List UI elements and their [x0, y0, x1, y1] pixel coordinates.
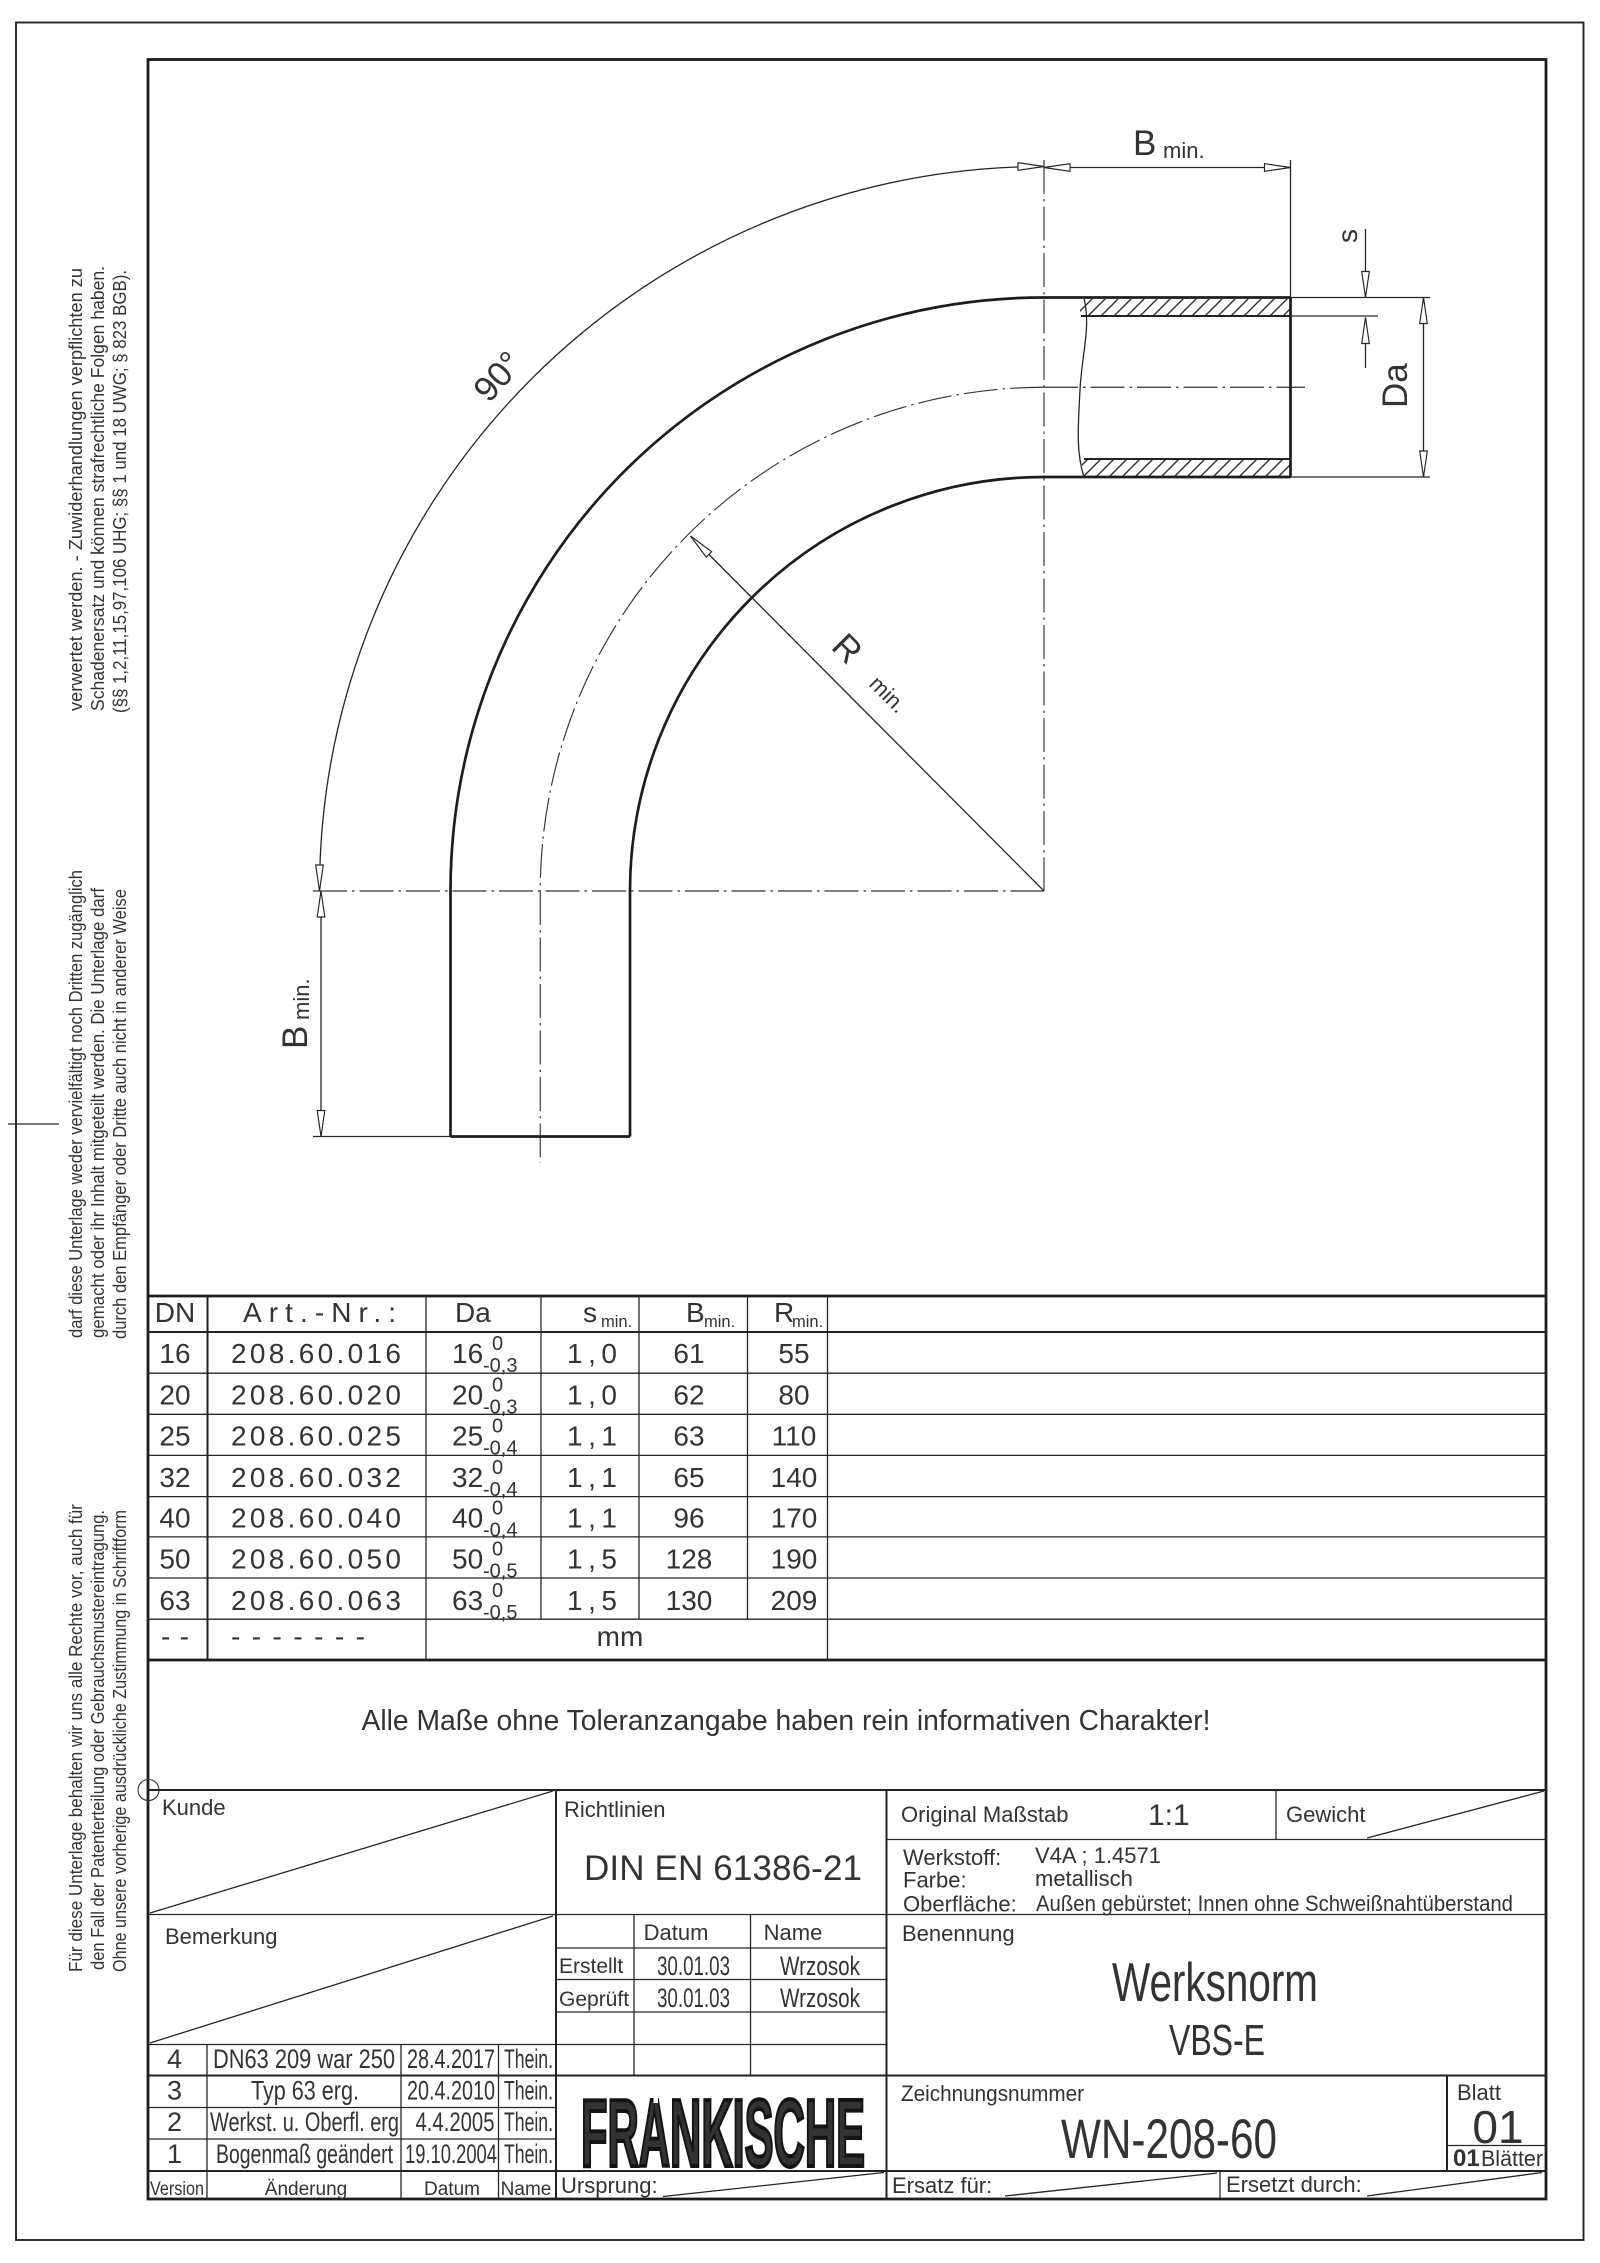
svg-text:B: B	[686, 1297, 705, 1328]
svg-text:0: 0	[492, 1333, 503, 1355]
svg-text:Ersatz für:: Ersatz für:	[892, 2173, 992, 2198]
svg-text:Gewicht: Gewicht	[1286, 1802, 1365, 1827]
svg-text:Bemerkung: Bemerkung	[165, 1924, 278, 1949]
svg-text:Zeichnungsnummer: Zeichnungsnummer	[901, 2081, 1084, 2106]
svg-text:4: 4	[167, 2044, 182, 2074]
svg-text:darf diese Unterlage weder ver: darf diese Unterlage weder vervielfältig…	[65, 870, 86, 1338]
svg-text:128: 128	[666, 1544, 713, 1575]
svg-text:1,1: 1,1	[567, 1462, 617, 1493]
svg-text:durch den Empfänger oder Dritt: durch den Empfänger oder Dritte auch nic…	[109, 889, 130, 1339]
svg-text:DIN EN 61386-21: DIN EN 61386-21	[584, 1849, 862, 1888]
svg-text:63: 63	[159, 1585, 190, 1616]
svg-text:1: 1	[167, 2139, 182, 2169]
svg-text:50: 50	[159, 1544, 190, 1575]
svg-text:Wrzosok: Wrzosok	[780, 1951, 860, 1981]
svg-text:0: 0	[492, 1416, 503, 1438]
svg-text:63: 63	[673, 1421, 704, 1452]
svg-text:63: 63	[452, 1585, 483, 1616]
svg-text:55: 55	[778, 1338, 809, 1369]
svg-text:110: 110	[772, 1421, 817, 1452]
svg-text:19.10.2004: 19.10.2004	[405, 2139, 497, 2169]
svg-text:min.: min.	[704, 1313, 735, 1331]
svg-text:Original Maßstab: Original Maßstab	[901, 1802, 1069, 1827]
svg-text:1:1: 1:1	[1148, 1799, 1190, 1832]
svg-text:Erstellt: Erstellt	[559, 1955, 623, 1978]
svg-text:(§§ 1,2,11,15,97,106 UHG; §§ 1: (§§ 1,2,11,15,97,106 UHG; §§ 1 und 18 UW…	[109, 270, 130, 713]
svg-text:min.: min.	[601, 1313, 632, 1331]
svg-text:30.01.03: 30.01.03	[657, 1951, 730, 1981]
svg-text:0: 0	[492, 1539, 503, 1561]
svg-text:96: 96	[673, 1503, 704, 1534]
svg-text:01: 01	[1453, 2145, 1480, 2172]
svg-text:1,5: 1,5	[567, 1585, 617, 1616]
svg-text:Blätter: Blätter	[1481, 2146, 1543, 2171]
svg-text:Kunde: Kunde	[162, 1795, 226, 1820]
svg-text:25: 25	[452, 1421, 483, 1452]
svg-text:50: 50	[452, 1544, 483, 1575]
svg-text:20: 20	[452, 1380, 483, 1411]
svg-text:VBS-E: VBS-E	[1169, 2016, 1265, 2065]
svg-text:Richtlinien: Richtlinien	[564, 1797, 666, 1822]
svg-text:Benennung: Benennung	[902, 1921, 1015, 1946]
svg-text:Thein.: Thein.	[504, 2044, 553, 2074]
svg-text:Thein.: Thein.	[504, 2139, 553, 2169]
svg-text:-0,5: -0,5	[483, 1602, 517, 1624]
svg-text:Farbe:: Farbe:	[903, 1868, 967, 1893]
svg-text:min.: min.	[289, 978, 314, 1020]
svg-text:80: 80	[778, 1380, 809, 1411]
svg-text:0: 0	[492, 1457, 503, 1479]
svg-text:Name: Name	[501, 2179, 552, 2200]
svg-text:min.: min.	[1163, 138, 1205, 163]
svg-text:B: B	[276, 1026, 315, 1049]
svg-text:0: 0	[492, 1375, 503, 1397]
svg-text:verwertet werden. - Zuwiderhan: verwertet werden. - Zuwiderhandlungen ve…	[65, 268, 86, 711]
svg-text:20: 20	[159, 1380, 190, 1411]
svg-text:40: 40	[452, 1503, 483, 1534]
svg-text:Änderung: Änderung	[265, 2179, 347, 2200]
svg-text:s: s	[583, 1297, 597, 1328]
svg-text:Werkstoff:: Werkstoff:	[903, 1845, 1001, 1870]
svg-text:61: 61	[673, 1338, 704, 1369]
svg-text:32: 32	[159, 1462, 190, 1493]
svg-text:209: 209	[771, 1585, 818, 1616]
svg-text:2: 2	[167, 2107, 182, 2137]
svg-text:FRANKISCHE: FRANKISCHE	[581, 2080, 865, 2187]
svg-text:130: 130	[666, 1585, 713, 1616]
svg-text:1,1: 1,1	[567, 1421, 617, 1452]
svg-text:170: 170	[771, 1503, 818, 1534]
svg-text:Ohne unsere vorherige ausdrück: Ohne unsere vorherige ausdrückliche Zust…	[109, 1510, 130, 1972]
svg-text:Bogenmaß geändert: Bogenmaß geändert	[216, 2139, 393, 2169]
svg-text:0: 0	[492, 1498, 503, 1520]
svg-text:den Fall der Patenterteilung o: den Fall der Patenterteilung oder Gebrau…	[87, 1510, 108, 1970]
svg-text:1,1: 1,1	[567, 1503, 617, 1534]
svg-text:Oberfläche:: Oberfläche:	[903, 1892, 1017, 1917]
svg-text:Datum: Datum	[424, 2179, 480, 2200]
svg-text:Name: Name	[764, 1920, 823, 1945]
svg-text:1,5: 1,5	[567, 1544, 617, 1575]
svg-text:3: 3	[167, 2076, 182, 2106]
svg-text:Werkst. u. Oberfl. erg: Werkst. u. Oberfl. erg	[210, 2107, 399, 2137]
svg-text:Schadenersatz und können straf: Schadenersatz und können strafrechtliche…	[87, 266, 108, 711]
svg-text:0: 0	[492, 1580, 503, 1602]
svg-text:1,0: 1,0	[567, 1380, 617, 1411]
svg-text:s: s	[1332, 229, 1363, 243]
svg-text:32: 32	[452, 1462, 483, 1493]
svg-text:Version: Version	[150, 2179, 204, 2200]
svg-text:Geprüft: Geprüft	[559, 1988, 629, 2011]
svg-text:Werksnorm: Werksnorm	[1112, 1951, 1318, 2013]
svg-text:40: 40	[159, 1503, 190, 1534]
svg-text:Da: Da	[1376, 363, 1415, 408]
svg-text:Typ 63 erg.: Typ 63 erg.	[251, 2076, 359, 2106]
svg-text:Für diese Unterlage behalten w: Für diese Unterlage behalten wir uns all…	[65, 1504, 86, 1972]
svg-text:4.4.2005: 4.4.2005	[416, 2107, 495, 2137]
svg-text:Thein.: Thein.	[504, 2107, 553, 2137]
svg-text:DN: DN	[155, 1297, 195, 1328]
svg-text:16: 16	[159, 1338, 190, 1369]
svg-text:62: 62	[673, 1380, 704, 1411]
svg-text:140: 140	[771, 1462, 818, 1493]
svg-text:65: 65	[673, 1462, 704, 1493]
svg-text:30.01.03: 30.01.03	[657, 1983, 730, 2013]
svg-text:Ersetzt durch:: Ersetzt durch:	[1226, 2172, 1362, 2197]
svg-text:Alle Maße ohne Toleranzangabe: Alle Maße ohne Toleranzangabe haben rein…	[362, 1705, 1211, 1737]
svg-text:WN-208-60: WN-208-60	[1061, 2107, 1277, 2170]
svg-text:metallisch: metallisch	[1035, 1866, 1133, 1891]
svg-text:V4A ; 1.4571: V4A ; 1.4571	[1035, 1843, 1161, 1868]
svg-text:Wrzosok: Wrzosok	[780, 1983, 860, 2013]
svg-text:28.4.2017: 28.4.2017	[407, 2044, 495, 2074]
svg-text:16: 16	[452, 1338, 483, 1369]
svg-text:Außen gebürstet; Innen ohne Sc: Außen gebürstet; Innen ohne Schweißnahtü…	[1036, 1891, 1513, 1916]
svg-text:20.4.2010: 20.4.2010	[407, 2076, 495, 2106]
svg-text:gemacht oder ihr Inhalt mitget: gemacht oder ihr Inhalt mitgeteilt werde…	[87, 887, 108, 1338]
svg-text:min.: min.	[792, 1313, 823, 1331]
svg-text:Da: Da	[455, 1297, 491, 1328]
svg-text:mm: mm	[597, 1621, 644, 1652]
svg-text:Datum: Datum	[644, 1920, 709, 1945]
svg-text:190: 190	[771, 1544, 818, 1575]
svg-text:DN63 209 war 250: DN63 209 war 250	[213, 2044, 395, 2074]
svg-text:25: 25	[159, 1421, 190, 1452]
svg-text:1,0: 1,0	[567, 1338, 617, 1369]
svg-text:B: B	[1133, 124, 1156, 163]
svg-text:Thein.: Thein.	[504, 2076, 553, 2106]
